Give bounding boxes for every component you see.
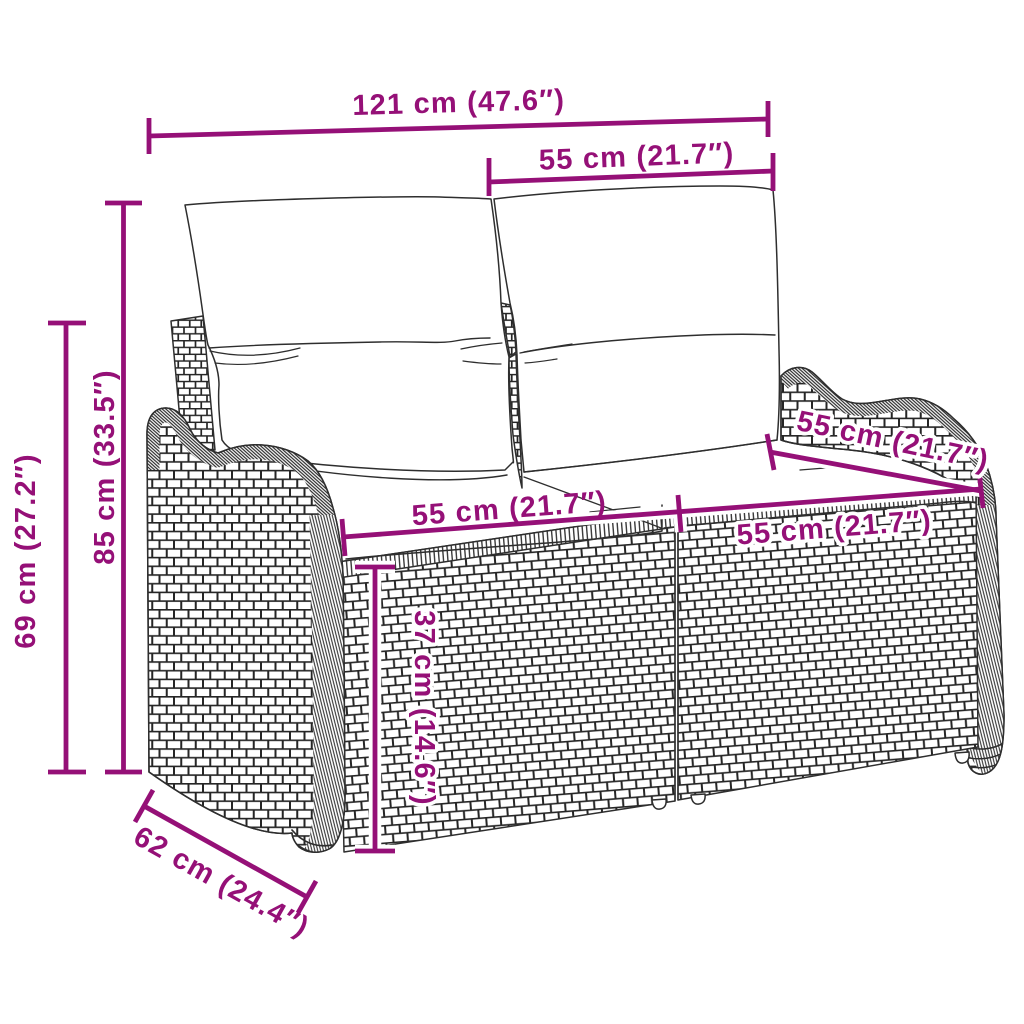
svg-text:85 cm (33.5″): 85 cm (33.5″) — [89, 369, 121, 565]
svg-text:37 cm (14.6″): 37 cm (14.6″) — [408, 610, 440, 806]
svg-text:55 cm (21.7″): 55 cm (21.7″) — [538, 137, 735, 176]
svg-text:121 cm (47.6″): 121 cm (47.6″) — [352, 84, 566, 122]
svg-text:69 cm (27.2″): 69 cm (27.2″) — [10, 453, 42, 649]
svg-text:62 cm (24.4″): 62 cm (24.4″) — [128, 820, 314, 943]
